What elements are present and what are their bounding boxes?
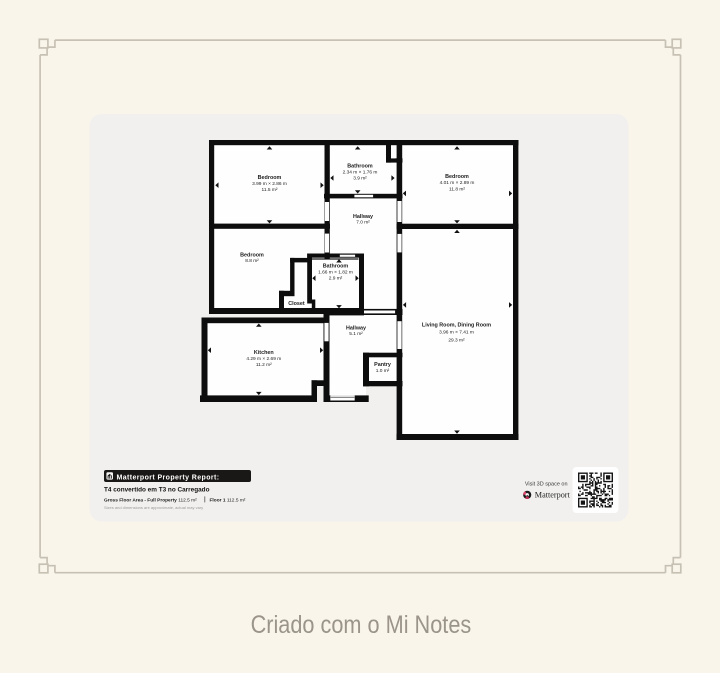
svg-text:3.96 m × 7.41 m: 3.96 m × 7.41 m — [439, 330, 474, 336]
svg-text:Hallway: Hallway — [353, 214, 373, 220]
svg-text:Closet: Closet — [288, 301, 305, 307]
svg-text:Pantry: Pantry — [374, 362, 391, 368]
svg-text:11.8 m²: 11.8 m² — [449, 187, 465, 193]
svg-text:11.2 m²: 11.2 m² — [256, 362, 272, 368]
svg-text:4.01 m × 2.89 m: 4.01 m × 2.89 m — [440, 180, 475, 186]
svg-text:Kitchen: Kitchen — [254, 350, 274, 356]
svg-text:Criado com o Mi Notes: Criado com o Mi Notes — [251, 611, 472, 639]
svg-text:1.66 m × 1.82 m: 1.66 m × 1.82 m — [318, 269, 353, 275]
svg-text:2.34 m × 1.76 m: 2.34 m × 1.76 m — [343, 170, 378, 176]
svg-text:Bathroom: Bathroom — [347, 164, 373, 170]
svg-text:5.1 m²: 5.1 m² — [349, 331, 363, 337]
svg-text:Bathroom: Bathroom — [323, 263, 349, 269]
svg-text:Hallway: Hallway — [346, 325, 366, 331]
svg-text:11.5 m²: 11.5 m² — [262, 187, 278, 193]
svg-text:Bedroom: Bedroom — [240, 252, 264, 258]
svg-text:4.29 m × 2.69 m: 4.29 m × 2.69 m — [246, 356, 281, 362]
svg-text:2.9 m²: 2.9 m² — [329, 275, 343, 281]
svg-text:Sizes and dimensions are appro: Sizes and dimensions are approximate, ac… — [104, 505, 203, 510]
svg-text:Gross Floor Area - Full Proper: Gross Floor Area - Full Property 112.5 m… — [104, 497, 197, 503]
svg-text:29.3 m²: 29.3 m² — [448, 337, 465, 343]
svg-text:Floor 1 112.5 m²: Floor 1 112.5 m² — [210, 497, 246, 503]
svg-text:Visit 3D space on: Visit 3D space on — [525, 482, 568, 488]
svg-text:8.8 m²: 8.8 m² — [245, 258, 259, 264]
svg-text:T4 convertido em T3 no Carrega: T4 convertido em T3 no Carregado — [104, 487, 210, 494]
svg-text:3.99 m × 2.86 m: 3.99 m × 2.86 m — [252, 181, 287, 187]
svg-text:7.0 m²: 7.0 m² — [356, 219, 370, 225]
svg-text:Bedroom: Bedroom — [445, 174, 469, 180]
svg-text:Matterport: Matterport — [535, 491, 571, 500]
svg-text:1.0 m²: 1.0 m² — [376, 368, 390, 374]
svg-text:Matterport Property Report:: Matterport Property Report: — [117, 474, 220, 481]
svg-text:Bedroom: Bedroom — [258, 175, 282, 181]
svg-text:3.9 m²: 3.9 m² — [353, 176, 367, 182]
svg-text:Living Room, Dining Room: Living Room, Dining Room — [422, 323, 491, 329]
